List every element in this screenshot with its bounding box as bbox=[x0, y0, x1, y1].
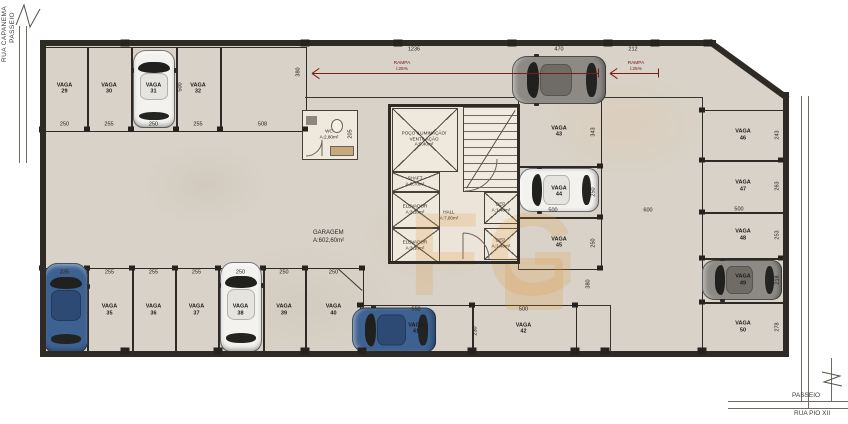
ramp-arrow-tail-0 bbox=[598, 69, 599, 78]
vaga-label-36: VAGA36 bbox=[146, 303, 161, 316]
vaga-label-45: VAGA45 bbox=[551, 236, 566, 249]
dim-vaga-38: 250 bbox=[236, 270, 245, 276]
ramp-edge-line bbox=[305, 97, 702, 98]
dim-vaga-46: 243 bbox=[775, 130, 781, 139]
dim-tick-20 bbox=[597, 266, 603, 271]
garage-area-label: GARAGEMA:602,60m² bbox=[313, 229, 344, 245]
vaga-label-42: VAGA42 bbox=[516, 322, 531, 335]
column-2 bbox=[394, 40, 403, 47]
street-line-right-outer bbox=[801, 96, 802, 402]
floor-plan: FG HALLA:7,80m² GARAGEMA:602,60m² RUA CA… bbox=[0, 0, 848, 424]
column-12 bbox=[571, 348, 580, 355]
vaga-label-43: VAGA43 bbox=[551, 125, 566, 138]
dim-vaga-32: 255 bbox=[193, 122, 202, 128]
column-0 bbox=[121, 40, 130, 47]
core-wall-right bbox=[517, 104, 520, 264]
dim-500-2: 500 bbox=[548, 208, 557, 214]
dim-vaga-50: 278 bbox=[775, 322, 781, 331]
column-10 bbox=[358, 348, 367, 355]
dim-tick-19 bbox=[597, 215, 603, 220]
vaga-label-50: VAGA50 bbox=[735, 320, 750, 333]
vaga-label-37: VAGA37 bbox=[189, 303, 204, 316]
wall-left bbox=[40, 40, 46, 357]
ramp-arrow-0 bbox=[312, 73, 598, 74]
ramp-label-0: RAMPAi:25% bbox=[394, 61, 411, 73]
dim-vaga-45: 250 bbox=[591, 238, 597, 247]
street-line-right-inner bbox=[808, 96, 809, 409]
dim-tick-15 bbox=[469, 303, 475, 308]
vaga-label-30: VAGA30 bbox=[101, 82, 116, 95]
wall-right bbox=[783, 92, 789, 355]
dim-tick-8 bbox=[129, 266, 135, 271]
vaga-cell-area-4 bbox=[220, 47, 307, 132]
ramp-label-1: RAMPAi:25% bbox=[628, 61, 645, 73]
dim-600-3: 600 bbox=[643, 208, 652, 214]
dim-500-1: 500 bbox=[178, 82, 184, 91]
dim-tick-23 bbox=[699, 210, 705, 215]
room-label-poco-iluminacao: POÇO ILUMINAÇÃO/VENTILAÇÃOA:5,40m² bbox=[402, 130, 447, 147]
street-line-left-outer bbox=[19, 26, 20, 163]
core-wall-bottom bbox=[388, 261, 520, 264]
vaga-label-49: VAGA49 bbox=[735, 273, 750, 286]
column-13 bbox=[601, 348, 610, 355]
vaga-label-29: VAGA29 bbox=[57, 82, 72, 95]
core-wall-left bbox=[388, 104, 391, 264]
dim-vaga-37: 255 bbox=[192, 270, 201, 276]
dim-tick-21 bbox=[699, 108, 705, 113]
street-line-left-inner bbox=[26, 26, 27, 163]
dim-vaga-41: 550 bbox=[411, 307, 420, 313]
wc-counter bbox=[330, 146, 354, 156]
dim-tick-13 bbox=[359, 266, 365, 271]
column-14 bbox=[698, 348, 707, 355]
street-label-passeio-bottom: PASSEIO bbox=[792, 392, 820, 399]
dim-230-6: 230 bbox=[473, 326, 479, 335]
dim-vaga-5: 235 bbox=[60, 270, 69, 276]
core-wall-top bbox=[388, 104, 520, 107]
street-label-rua-capanema: RUA CAPANEMA bbox=[1, 6, 8, 62]
break-symbol-top-left bbox=[14, 3, 42, 29]
car-blue-2 bbox=[44, 263, 88, 353]
stair-door-arc bbox=[464, 158, 498, 192]
vaga-label-32: VAGA32 bbox=[190, 82, 205, 95]
vaga-label-46: VAGA46 bbox=[735, 128, 750, 141]
dim-212-10: 212 bbox=[628, 47, 637, 53]
dim-380-0: 380 bbox=[296, 67, 302, 76]
dim-500-4: 500 bbox=[734, 207, 743, 213]
vaga-label-40: VAGA40 bbox=[326, 303, 341, 316]
vaga-label-38: VAGA38 bbox=[233, 303, 248, 316]
dim-380-5: 380 bbox=[586, 279, 592, 288]
column-11 bbox=[468, 348, 477, 355]
column-6 bbox=[704, 40, 713, 47]
vaga-label-48: VAGA48 bbox=[735, 228, 750, 241]
street-line-bottom-lower bbox=[728, 408, 848, 409]
column-1 bbox=[301, 40, 310, 47]
vaga-label-31: VAGA31 bbox=[146, 82, 161, 95]
room-label-shaft: SHAFTA:0,70m² bbox=[406, 175, 425, 186]
dim-vaga-49: 218 bbox=[775, 275, 781, 284]
vaga-label-44: VAGA44 bbox=[551, 185, 566, 198]
dim-tick-22 bbox=[699, 158, 705, 163]
dim-tick-25 bbox=[699, 300, 705, 305]
vaga-label-39: VAGA39 bbox=[276, 303, 291, 316]
column-9 bbox=[301, 348, 310, 355]
dim-vaga-4: 508 bbox=[258, 122, 267, 128]
street-line-bottom-upper bbox=[728, 401, 848, 402]
dim-tick-1 bbox=[84, 127, 90, 132]
break-symbol-bottom-right bbox=[820, 366, 844, 392]
dim-vaga-35: 255 bbox=[105, 270, 114, 276]
column-5 bbox=[651, 40, 660, 47]
column-4 bbox=[604, 40, 613, 47]
dim-tick-16 bbox=[572, 303, 578, 308]
column-8 bbox=[214, 348, 223, 355]
dim-vaga-31: 250 bbox=[149, 122, 158, 128]
dim-vaga-36: 255 bbox=[149, 270, 158, 276]
street-label-rua-pio-xii: RUA PIO XII bbox=[794, 410, 830, 417]
wall-top bbox=[40, 40, 716, 46]
ramp-arrow-1 bbox=[610, 73, 658, 74]
column-3 bbox=[508, 40, 517, 47]
dim-tick-4 bbox=[217, 127, 223, 132]
dim-1236-8: 1236 bbox=[408, 47, 420, 53]
watermark-block bbox=[505, 258, 563, 310]
dim-vaga-29: 250 bbox=[60, 122, 69, 128]
dim-vaga-30: 255 bbox=[104, 122, 113, 128]
dim-vaga-48: 253 bbox=[775, 230, 781, 239]
ramp-arrow-tail-1 bbox=[658, 69, 659, 78]
dim-vaga-39: 250 bbox=[279, 270, 288, 276]
dim-205-7: 205 bbox=[348, 129, 354, 138]
car-gray-1 bbox=[512, 56, 606, 104]
dim-vaga-40: 250 bbox=[329, 270, 338, 276]
dim-vaga-44: 250 bbox=[591, 187, 597, 196]
dim-vaga-43: 343 bbox=[591, 127, 597, 136]
wall-bottom bbox=[40, 351, 789, 357]
dim-tick-5 bbox=[302, 127, 308, 132]
vaga-label-35: VAGA35 bbox=[102, 303, 117, 316]
wc-sink bbox=[306, 116, 317, 125]
car-body bbox=[512, 56, 606, 104]
wc-door-arc bbox=[305, 139, 323, 157]
dim-470-9: 470 bbox=[554, 47, 563, 53]
column-7 bbox=[121, 348, 130, 355]
vaga-label-47: VAGA47 bbox=[735, 179, 750, 192]
room-label-wc: WCA:2,80m² bbox=[320, 128, 339, 139]
car-body bbox=[44, 263, 88, 353]
dim-vaga-42: 500 bbox=[519, 307, 528, 313]
dim-tick-9 bbox=[172, 266, 178, 271]
vaga-label-41: VAGA41 bbox=[408, 322, 423, 335]
dim-tick-12 bbox=[302, 266, 308, 271]
aisle-line-v bbox=[610, 305, 611, 352]
dim-vaga-47: 263 bbox=[775, 181, 781, 190]
